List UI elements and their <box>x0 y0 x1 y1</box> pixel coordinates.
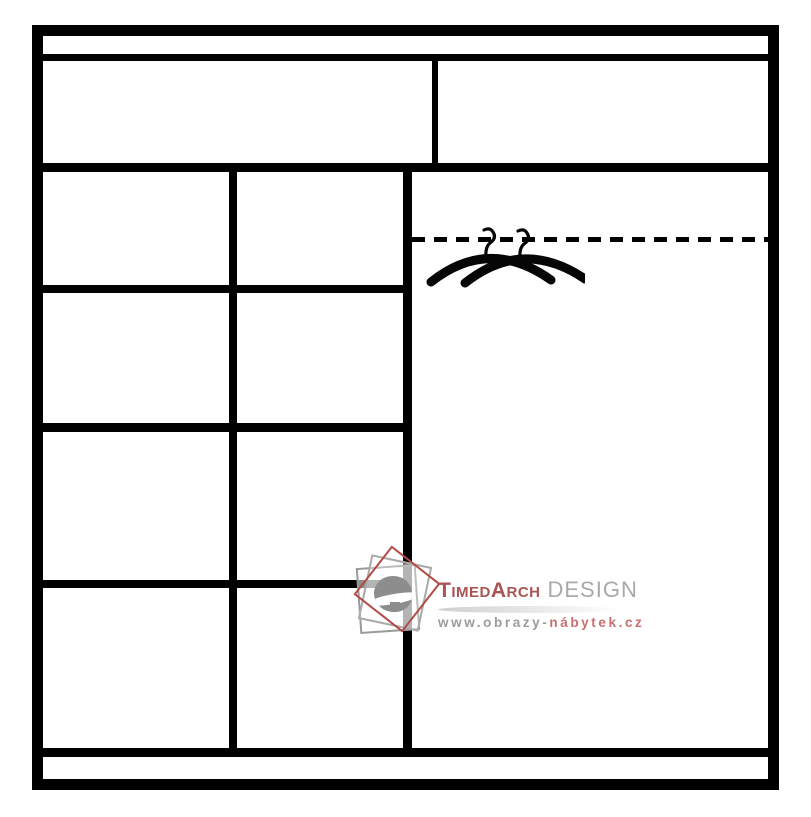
watermark-url: www.obrazy-nábytek.cz <box>438 615 644 630</box>
watermark-logo <box>348 552 438 642</box>
watermark-text: TimedArchDESIGN www.obrazy-nábytek.cz <box>438 578 644 630</box>
shelf-line-2 <box>43 423 412 432</box>
top-shelf-line <box>43 54 768 61</box>
watermark-swoosh <box>438 606 623 613</box>
top-section-divider <box>432 61 438 163</box>
brand-suffix: DESIGN <box>548 577 638 602</box>
wardrobe-section-divider <box>403 172 412 748</box>
shelf-area-top-line <box>43 163 768 172</box>
brand-name: TimedArch <box>438 579 541 602</box>
hanger-icon <box>423 218 585 296</box>
brand-line: TimedArchDESIGN <box>438 578 644 605</box>
wardrobe-diagram: TimedArchDESIGN www.obrazy-nábytek.cz <box>0 0 811 817</box>
watermark: TimedArchDESIGN www.obrazy-nábytek.cz <box>348 552 628 647</box>
logo-picture-icon <box>374 576 412 612</box>
shelf-column-divider <box>229 172 237 748</box>
url-prefix: www.obrazy- <box>438 615 549 630</box>
logo-tail-shape <box>390 602 400 612</box>
url-suffix: nábytek.cz <box>549 615 644 630</box>
shelf-line-1 <box>43 285 412 293</box>
wardrobe-interior <box>43 36 768 779</box>
bottom-shelf-line <box>43 748 768 757</box>
